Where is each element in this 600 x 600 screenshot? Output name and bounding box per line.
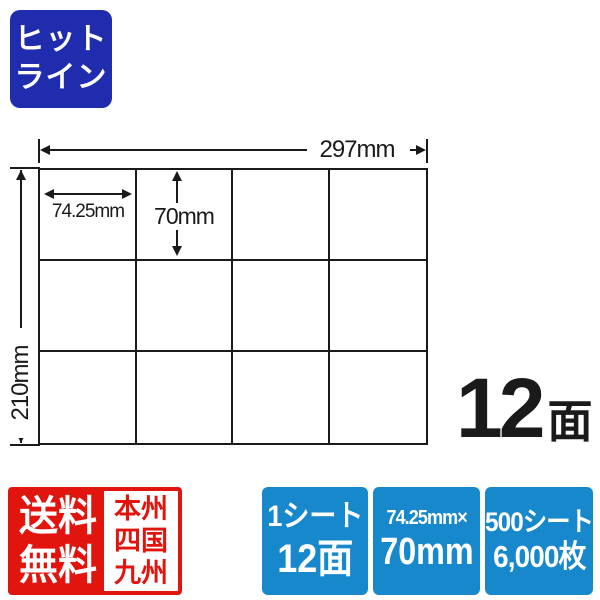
face-count-number: 12	[456, 361, 541, 455]
spec-badge-line1: 1シート	[267, 500, 363, 535]
free-shipping-line2: 無料	[19, 541, 97, 590]
label-cell	[233, 170, 330, 261]
shop-logo-text-line2: ライン	[15, 60, 108, 96]
dimension-tick	[10, 167, 40, 169]
region-shikoku: 四国	[114, 525, 168, 557]
spec-badge-line2: 70mm	[380, 531, 473, 575]
spec-badge-line1: 500シート	[485, 507, 593, 538]
spec-badge-label-size: 74.25mm× 70mm	[373, 487, 480, 595]
spec-badge-quantity: 500シート 6,000枚	[485, 487, 593, 595]
shop-logo-text-line1: ヒット	[15, 22, 108, 58]
spec-badge-line2: 6,000枚	[493, 539, 585, 575]
label-height-label: 70mm	[146, 203, 222, 230]
label-cell	[330, 352, 427, 443]
sheet-height-dimension: 210mm	[10, 167, 40, 446]
label-cell	[137, 261, 234, 352]
dimension-tick	[10, 444, 40, 446]
sheet-height-label: 210mm	[8, 328, 34, 438]
sheet-width-label: 297mm	[304, 137, 410, 163]
spec-badge-line2: 12面	[277, 536, 353, 582]
label-cell	[40, 261, 137, 352]
spec-badge-line1: 74.25mm×	[386, 507, 466, 530]
shop-logo: ヒット ライン	[10, 10, 112, 108]
free-shipping-text: 送料 無料	[8, 489, 108, 593]
arrowhead-right-icon	[122, 189, 132, 199]
dimension-line	[47, 149, 307, 151]
dimension-line	[52, 193, 124, 195]
label-cell	[330, 170, 427, 261]
arrowhead-right-icon	[416, 145, 426, 155]
label-width-dimension	[44, 188, 132, 200]
region-kyushu: 九州	[114, 557, 168, 589]
free-shipping-line1: 送料	[19, 492, 97, 541]
arrowhead-up-icon	[16, 170, 26, 180]
label-cell	[40, 352, 137, 443]
spec-badge-faces-per-sheet: 1シート 12面	[262, 487, 368, 595]
sheet-width-dimension: 297mm	[38, 139, 428, 163]
label-cell	[233, 261, 330, 352]
arrowhead-down-icon	[172, 246, 182, 256]
product-image: ヒット ライン 297mm 210mm 74.25mm 70mm 12面	[0, 0, 600, 600]
label-cell	[330, 261, 427, 352]
dimension-tick	[426, 139, 428, 163]
label-cell	[233, 352, 330, 443]
region-honshu: 本州	[114, 493, 168, 525]
label-width-label: 74.25mm	[40, 201, 136, 223]
shipping-regions-box: 本州 四国 九州	[104, 491, 178, 591]
label-cell	[137, 352, 234, 443]
face-count-unit: 面	[547, 396, 592, 447]
face-count: 12面	[456, 360, 592, 457]
free-shipping-badge: 送料 無料 本州 四国 九州	[8, 487, 182, 595]
